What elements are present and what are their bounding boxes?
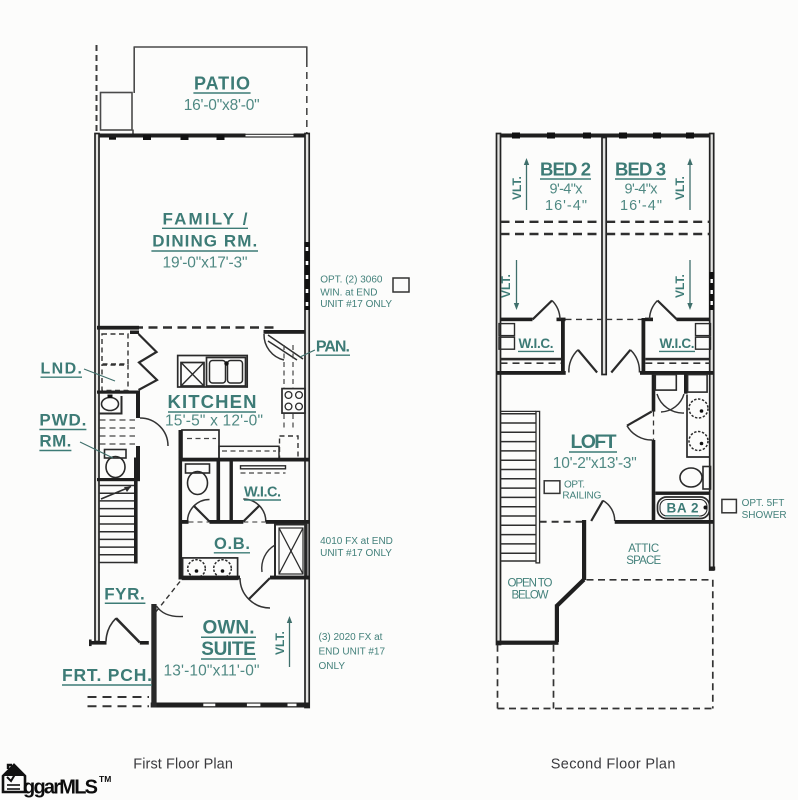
svg-text:15'-5" x 12'-0": 15'-5" x 12'-0" — [165, 412, 263, 429]
svg-text:WIN. at END: WIN. at END — [320, 288, 377, 299]
svg-text:PAN.: PAN. — [316, 339, 350, 356]
svg-text:19'-0"x17'-3": 19'-0"x17'-3" — [163, 254, 248, 271]
svg-text:TM: TM — [99, 774, 111, 784]
svg-text:OWN.: OWN. — [203, 618, 255, 639]
svg-text:LOFT: LOFT — [571, 431, 617, 453]
svg-text:16'-4": 16'-4" — [545, 198, 587, 214]
svg-text:END UNIT #17: END UNIT #17 — [319, 647, 386, 658]
svg-text:UNIT #17 ONLY: UNIT #17 ONLY — [320, 299, 392, 310]
svg-text:SHOWER: SHOWER — [742, 510, 787, 521]
svg-text:DINING RM.: DINING RM. — [152, 231, 257, 250]
svg-text:W.I.C.: W.I.C. — [244, 485, 281, 501]
svg-text:10'-2"x13'-3": 10'-2"x13'-3" — [553, 455, 637, 472]
svg-text:ONLY: ONLY — [319, 661, 346, 672]
svg-text:W.I.C.: W.I.C. — [519, 336, 554, 351]
svg-text:BA 2: BA 2 — [667, 501, 699, 516]
svg-text:9'-4"x: 9'-4"x — [625, 182, 659, 198]
svg-text:VLT.: VLT. — [673, 176, 687, 200]
svg-text:RAILING: RAILING — [562, 491, 601, 502]
svg-text:VLT.: VLT. — [673, 274, 687, 298]
svg-text:ATTIC: ATTIC — [628, 543, 659, 555]
svg-text:ggarMLS: ggarMLS — [23, 777, 98, 799]
svg-text:VLT.: VLT. — [273, 631, 287, 655]
svg-text:16'-4": 16'-4" — [620, 198, 662, 214]
svg-text:W.I.C.: W.I.C. — [660, 336, 695, 351]
svg-text:OPEN TO: OPEN TO — [508, 578, 553, 590]
svg-text:4010 FX at END: 4010 FX at END — [320, 536, 393, 547]
svg-text:9'-4"x: 9'-4"x — [550, 182, 584, 198]
svg-text:FYR.: FYR. — [104, 585, 145, 604]
svg-text:RM.: RM. — [39, 432, 71, 451]
svg-text:LND.: LND. — [41, 361, 83, 378]
svg-text:BED 3: BED 3 — [615, 158, 666, 179]
svg-text:Second Floor Plan: Second Floor Plan — [551, 757, 676, 773]
svg-text:First Floor Plan: First Floor Plan — [133, 757, 233, 773]
svg-text:16'-0"x8'-0": 16'-0"x8'-0" — [184, 97, 260, 114]
svg-text:OPT. (2) 3060: OPT. (2) 3060 — [320, 275, 383, 286]
svg-text:UNIT #17 ONLY: UNIT #17 ONLY — [320, 548, 392, 559]
svg-text:(3) 2020 FX at: (3) 2020 FX at — [319, 632, 383, 643]
svg-text:O.B.: O.B. — [214, 535, 250, 553]
svg-text:BED 2: BED 2 — [540, 158, 591, 179]
svg-text:BELOW: BELOW — [512, 589, 549, 601]
svg-text:SPACE: SPACE — [626, 555, 661, 567]
svg-text:VLT.: VLT. — [510, 176, 524, 200]
svg-text:KITCHEN: KITCHEN — [168, 391, 257, 412]
svg-text:PATIO: PATIO — [194, 74, 250, 94]
svg-text:SUITE: SUITE — [201, 639, 256, 660]
svg-text:OPT. 5FT: OPT. 5FT — [742, 498, 785, 509]
svg-text:FRT. PCH.: FRT. PCH. — [62, 665, 152, 685]
svg-text:OPT.: OPT. — [564, 480, 585, 491]
svg-text:VLT.: VLT. — [499, 274, 513, 298]
svg-text:13'-10"x11'-0": 13'-10"x11'-0" — [164, 663, 260, 680]
svg-text:FAMILY /: FAMILY / — [163, 209, 248, 228]
svg-text:PWD.: PWD. — [39, 411, 86, 430]
